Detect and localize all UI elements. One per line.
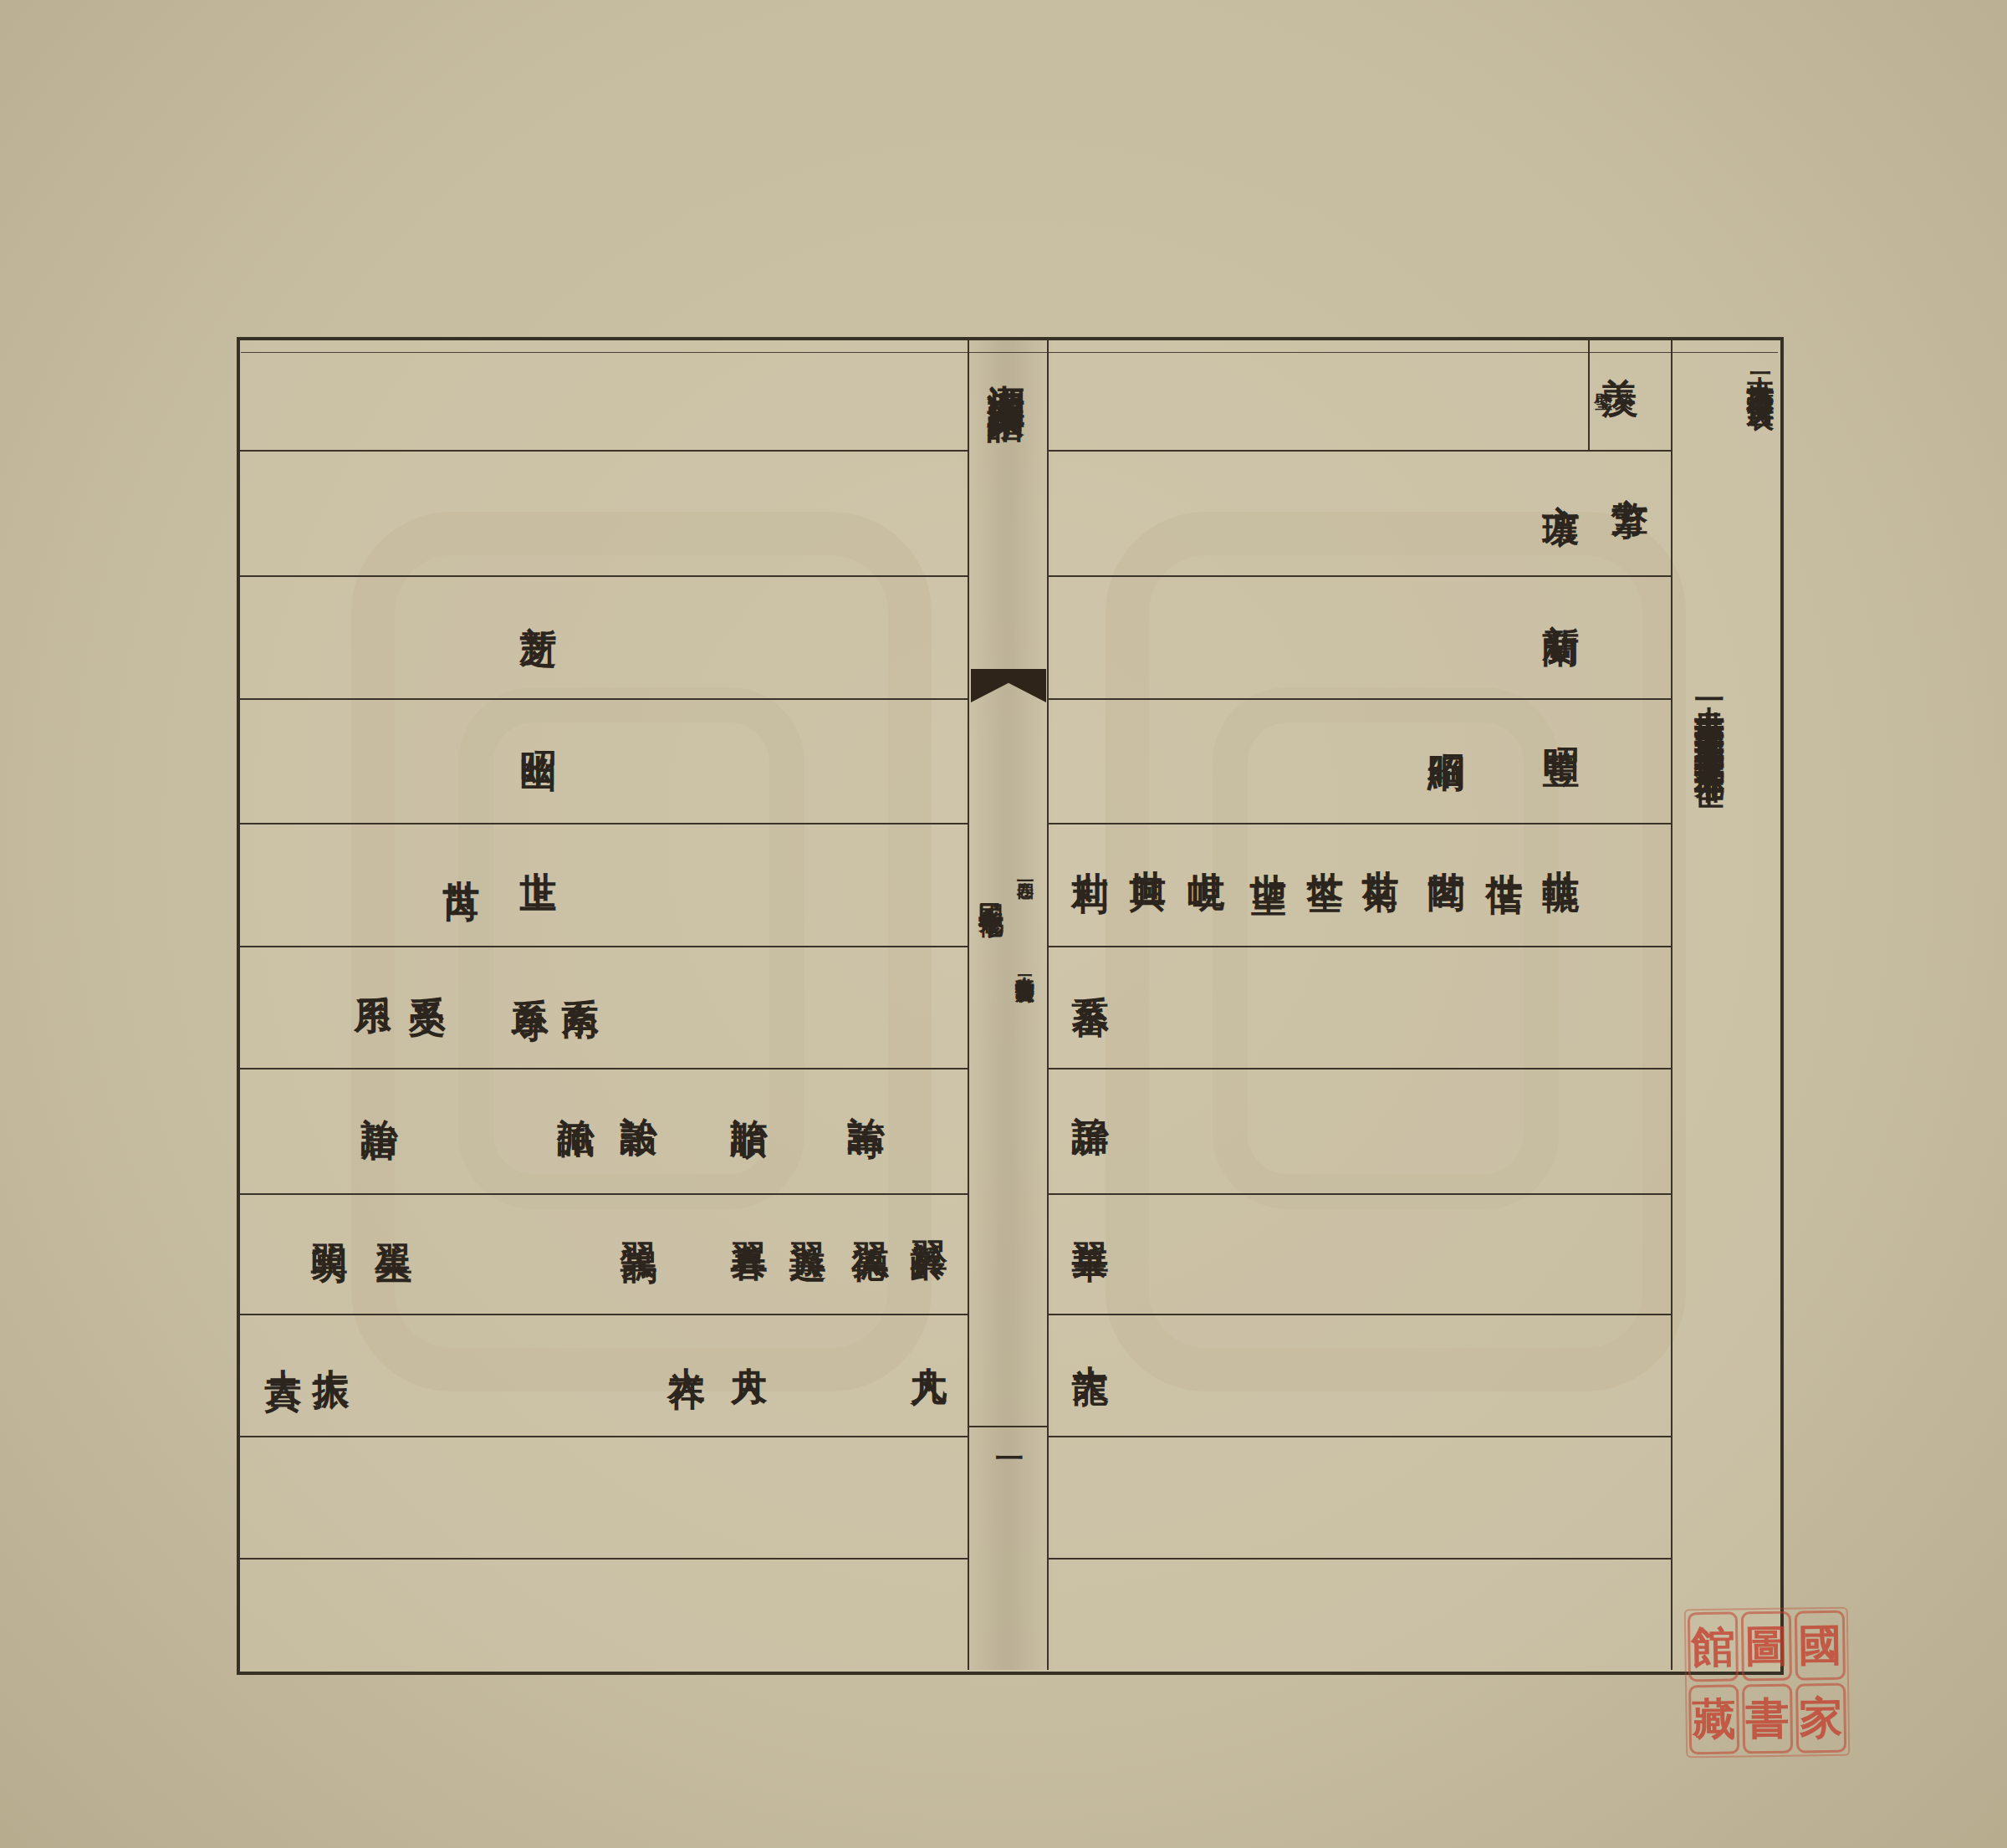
generation-scale: 十一世十二世十三世十四世十五世十六世十七世十八世十九世二十世 [1695, 682, 1725, 757]
row-line [1049, 1558, 1672, 1560]
person-name: 大月 [731, 1338, 768, 1346]
person-name: 詒佩 [558, 1089, 595, 1097]
person-name: 大龍 [1072, 1336, 1109, 1345]
spine-footer-rule [969, 1426, 1047, 1427]
person-name: 翼遊 [789, 1212, 826, 1221]
book-title: 湘潭方上周氏家譜 [988, 355, 1025, 375]
person-name: 世筌 [1307, 843, 1344, 851]
person-name: 世上 [520, 843, 557, 851]
person-name: 昭綱 [1428, 724, 1465, 733]
person-name: 大凡 [911, 1338, 947, 1346]
row-line [240, 1436, 968, 1437]
spine-left-border [968, 339, 969, 1670]
person-name: 系受 [409, 966, 446, 974]
seal-char: 書 [1742, 1684, 1793, 1754]
ancestor-note: 榮璧 [1594, 390, 1633, 415]
person-name: 大振 [313, 1340, 350, 1348]
row-line [1049, 1193, 1672, 1195]
person-name: 世峴 [1188, 843, 1225, 851]
person-name: 翼齡 [911, 1211, 947, 1219]
table-title: 二支十世榮璧公房世表 [1747, 351, 1775, 385]
person-name: 詒穀 [620, 1087, 657, 1095]
person-name: 系用 [355, 966, 391, 974]
person-name: 世閣 [1428, 843, 1465, 851]
spine-right-border [1047, 339, 1049, 1670]
person-name: 翼春 [731, 1212, 768, 1221]
person-name: 昭豐 [1543, 717, 1580, 726]
row-line [1049, 823, 1672, 824]
ancestor-note-char: 榮 [1615, 390, 1633, 415]
person-name: 系蕃 [1072, 966, 1109, 974]
spine-section-title: 二支十世榮璧公房世表 [1016, 960, 1035, 968]
person-name: 詒順 [731, 1089, 768, 1097]
person-name: 世芮 [443, 851, 480, 860]
person-name: 大祥 [668, 1338, 705, 1346]
row-line [240, 698, 968, 700]
person-name: 世興 [1130, 841, 1167, 850]
row-line [1049, 575, 1672, 577]
row-line [1049, 450, 1672, 452]
row-line [240, 575, 968, 577]
person-name: 新芝 [520, 597, 557, 605]
person-name: 翼生 [375, 1214, 412, 1223]
seal-char: 國 [1795, 1611, 1846, 1681]
person-name: 系南 [562, 968, 599, 977]
row-line [240, 946, 968, 947]
person-name: 世轆 [1543, 841, 1580, 850]
seal-char: 圖 [1741, 1611, 1792, 1682]
person-name: 翼德 [852, 1212, 889, 1221]
row-line [240, 1068, 968, 1069]
person-name: 翼華 [1072, 1212, 1109, 1221]
row-line [1049, 946, 1672, 947]
person-name: 大貴 [265, 1340, 302, 1348]
person-name: 世菊 [1362, 841, 1399, 850]
seal-char: 藏 [1688, 1684, 1739, 1754]
ancestor-note-char: 璧 [1594, 390, 1612, 415]
row-line [240, 1193, 968, 1195]
person-name: 詒唐 [361, 1089, 398, 1097]
inner-top-rule [241, 352, 1778, 353]
person-name: 翼明 [311, 1214, 348, 1223]
library-collection-seal: 國 家 圖 書 館 藏 [1684, 1607, 1850, 1759]
person-name: 世佶 [1486, 845, 1523, 853]
person-name: 系尊 [512, 968, 549, 977]
person-name: 昭幽 [520, 721, 557, 729]
row-line [240, 823, 968, 824]
header-column-divider [1671, 339, 1672, 1670]
spine-volume: 卷四一 [1017, 868, 1034, 873]
person-name: 詒屏 [1072, 1087, 1109, 1095]
row-line [240, 1558, 968, 1560]
row-line [1049, 1314, 1672, 1315]
row-line [240, 1314, 968, 1315]
seal-char: 家 [1795, 1683, 1846, 1754]
person-name: 新蘭 [1543, 595, 1580, 604]
person-name: 世望 [1250, 845, 1287, 853]
person-name: 世利 [1072, 843, 1109, 851]
person-name: 詒蓴 [848, 1087, 885, 1095]
spine-edition-note: 民國十九年七修 [978, 883, 1004, 895]
folio-page-number: 一 [995, 1440, 1024, 1478]
person-name: 方擎 [1611, 468, 1648, 477]
row-line [240, 450, 968, 452]
row-line [1049, 1436, 1672, 1437]
person-name: 翼鵠 [620, 1212, 657, 1221]
row-line [1049, 698, 1672, 700]
seal-char: 館 [1688, 1611, 1739, 1682]
ancestor-cell-divider [1588, 339, 1590, 451]
row-line [1049, 1068, 1672, 1069]
person-name: 方瓖 [1543, 475, 1580, 483]
